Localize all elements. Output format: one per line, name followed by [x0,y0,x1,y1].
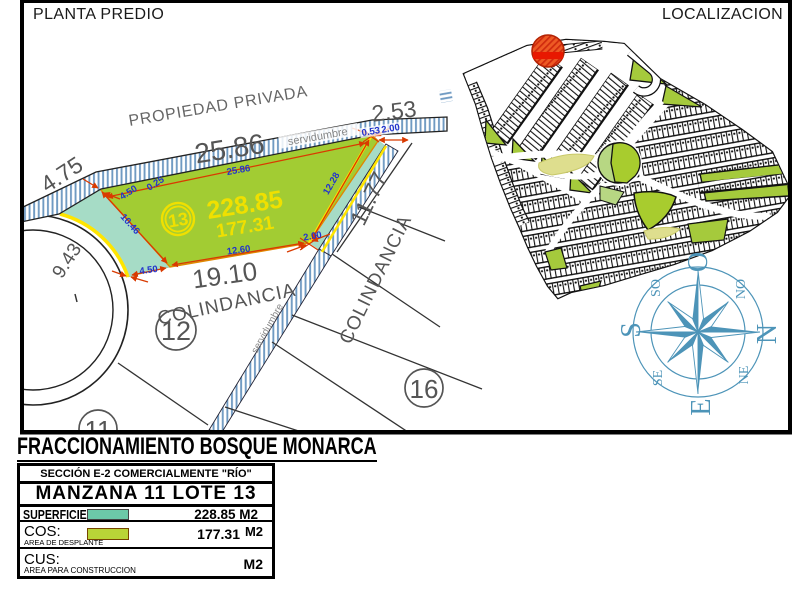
svg-text:16: 16 [410,374,439,404]
svg-text:N: N [752,324,783,344]
svg-text:12: 12 [161,316,191,346]
svg-text:0.53: 0.53 [361,125,381,139]
svg-text:4.50: 4.50 [139,264,159,277]
svg-text:SE: SE [651,370,666,386]
svg-text:NE: NE [737,366,752,385]
svg-text:E: E [686,398,717,415]
svg-text:NO: NO [734,279,749,299]
svg-text:COLINDANCIA: COLINDANCIA [336,212,417,348]
svg-text:12.60: 12.60 [226,243,251,257]
svg-text:PROPIEDAD PRIVADA: PROPIEDAD PRIVADA [127,83,309,130]
svg-text:O: O [683,252,714,272]
svg-text:SO: SO [649,279,664,297]
svg-text:13: 13 [167,209,190,232]
svg-text:S: S [616,322,647,338]
